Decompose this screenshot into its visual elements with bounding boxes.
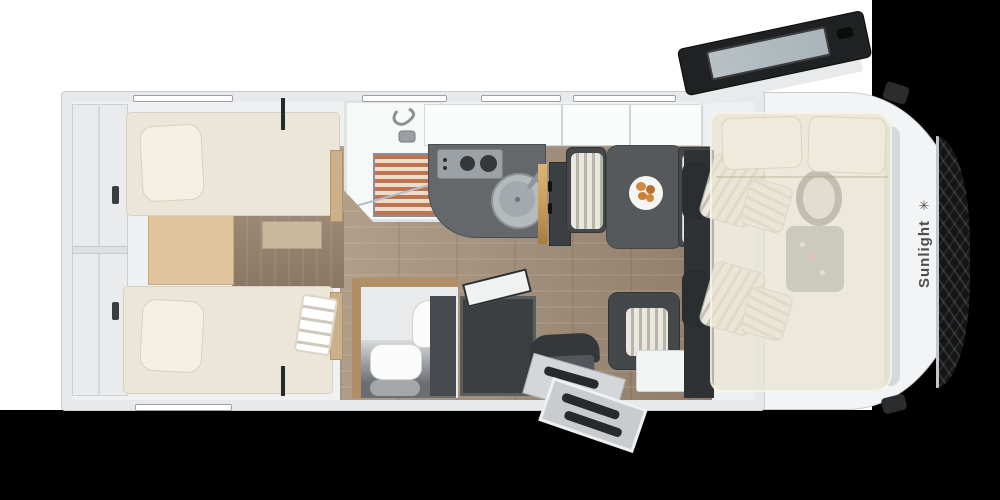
window-slot-rear-bottom — [135, 404, 232, 411]
croissant — [636, 182, 646, 191]
bedside-cabinet-top — [330, 150, 343, 222]
motorhome-floorplan: ✳ Sunlight — [0, 0, 1000, 500]
hob-knob — [443, 158, 447, 162]
reading-light-icon — [112, 302, 119, 320]
gas-hob — [437, 149, 503, 179]
burner — [480, 155, 497, 172]
sink-drain — [515, 197, 520, 202]
dinette-bench-side — [566, 147, 606, 233]
window-slot-dinette — [573, 95, 676, 102]
kitchen-counter — [428, 144, 546, 238]
croissant — [646, 194, 654, 202]
window-slot-mid — [481, 95, 561, 102]
pillow-cab-right — [807, 116, 887, 175]
reading-light-icon — [112, 186, 119, 204]
window-slot-rear-top — [133, 95, 233, 102]
front-grille — [936, 136, 970, 388]
washroom-wall — [352, 278, 458, 287]
croissant — [646, 185, 655, 194]
bench-cushion — [626, 308, 668, 356]
shower-fixture-icon — [369, 105, 429, 151]
sun-icon: ✳ — [919, 198, 930, 214]
plate — [629, 176, 663, 210]
burner — [460, 156, 475, 171]
dinette-table — [606, 145, 684, 249]
brand-badge: ✳ Sunlight — [908, 198, 940, 348]
washroom-cabinet — [430, 296, 456, 396]
brand-text: Sunlight — [916, 220, 933, 288]
garage-divider — [72, 246, 128, 254]
locker-divider — [561, 105, 563, 145]
hob-knob — [443, 166, 447, 170]
pillow-top-bed — [139, 123, 205, 202]
washroom — [352, 278, 458, 398]
bedroom-step — [262, 221, 322, 249]
wall-stub-top — [281, 98, 285, 130]
wall-stub-bottom — [281, 366, 285, 396]
washbasin-reflection — [370, 380, 420, 396]
locker-divider — [629, 105, 631, 145]
pillow-bottom-bed — [139, 298, 205, 373]
fridge-handle — [548, 181, 552, 192]
overhead-lockers — [424, 104, 702, 146]
oak-bed-podium — [148, 213, 234, 285]
bench-cushion — [571, 153, 603, 229]
window-slot-kitchen — [362, 95, 447, 102]
gold-trim-panel — [538, 164, 547, 244]
bed-seam — [716, 176, 888, 178]
fridge-handle — [548, 203, 552, 214]
washroom-wall — [352, 278, 361, 398]
pillow-cab-left — [721, 116, 803, 171]
washbasin — [370, 344, 422, 380]
